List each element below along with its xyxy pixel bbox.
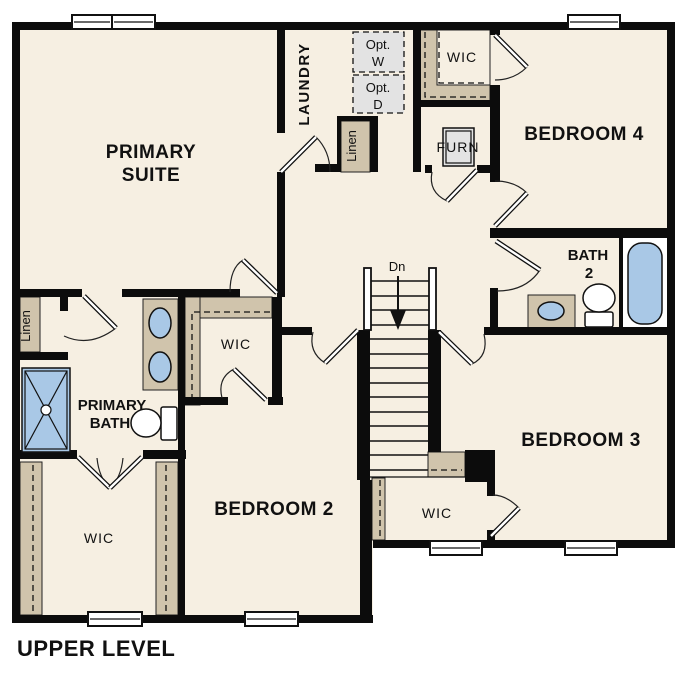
primary-bath-label-2: BATH — [90, 415, 131, 432]
primary-bath-label-1: PRIMARY — [78, 397, 147, 414]
linen-lower-label: Linen — [18, 310, 33, 342]
window-primary-suite-2 — [112, 15, 155, 29]
shower-drain-icon — [41, 405, 51, 415]
primary-suite-label-1: PRIMARY — [106, 142, 196, 163]
linen-upper-label: Linen — [344, 130, 359, 162]
page-title: UPPER LEVEL — [17, 636, 175, 661]
window-primary-suite-1 — [72, 15, 112, 29]
bedroom3-label: BEDROOM 3 — [521, 430, 641, 451]
opt-dryer-label-1: Opt. — [366, 80, 391, 95]
wic-lower-label: WIC — [84, 530, 114, 546]
floor-plan-page: PRIMARY SUITE LAUNDRY Opt. W Opt. D WIC … — [0, 0, 687, 687]
bedroom2-label: BEDROOM 2 — [214, 499, 334, 520]
wic-bedroom3-rod — [372, 478, 385, 540]
window-bedroom4 — [568, 15, 620, 29]
laundry-label: LAUNDRY — [296, 42, 313, 125]
bath2-sink — [538, 302, 564, 320]
window-bedroom2 — [245, 612, 298, 626]
stairs-dn-label: Dn — [389, 259, 406, 274]
primary-suite-label-2: SUITE — [122, 165, 180, 186]
floor-plan-drawing: PRIMARY SUITE LAUNDRY Opt. W Opt. D WIC … — [0, 0, 687, 687]
opt-dryer-label-2: D — [373, 97, 382, 112]
wic-lower-rod-right — [156, 462, 178, 615]
wic-upper-label: WIC — [447, 49, 477, 65]
stair-rail-right — [429, 268, 436, 330]
bedroom4-label: BEDROOM 4 — [524, 124, 644, 145]
window-wic-bedroom3 — [430, 541, 482, 555]
wic-lower-rod-left — [20, 462, 42, 615]
opt-washer-label-2: W — [372, 54, 385, 69]
stair-rail-left — [364, 268, 371, 330]
opt-washer-label-1: Opt. — [366, 37, 391, 52]
bath2-label-1: BATH — [568, 247, 609, 264]
primary-sink-2 — [149, 352, 171, 382]
window-bedroom3 — [565, 541, 617, 555]
understair-shelf — [428, 452, 465, 477]
wic-primary-label: WIC — [221, 336, 251, 352]
primary-shower — [22, 368, 70, 452]
bath2-tub — [628, 243, 662, 324]
bath2-toilet — [583, 284, 615, 327]
window-wic-lower — [88, 612, 142, 626]
furnace-label: FURN — [437, 139, 480, 155]
bath2-label-2: 2 — [585, 265, 593, 282]
primary-sink-1 — [149, 308, 171, 338]
wic-bedroom3-label: WIC — [422, 505, 452, 521]
